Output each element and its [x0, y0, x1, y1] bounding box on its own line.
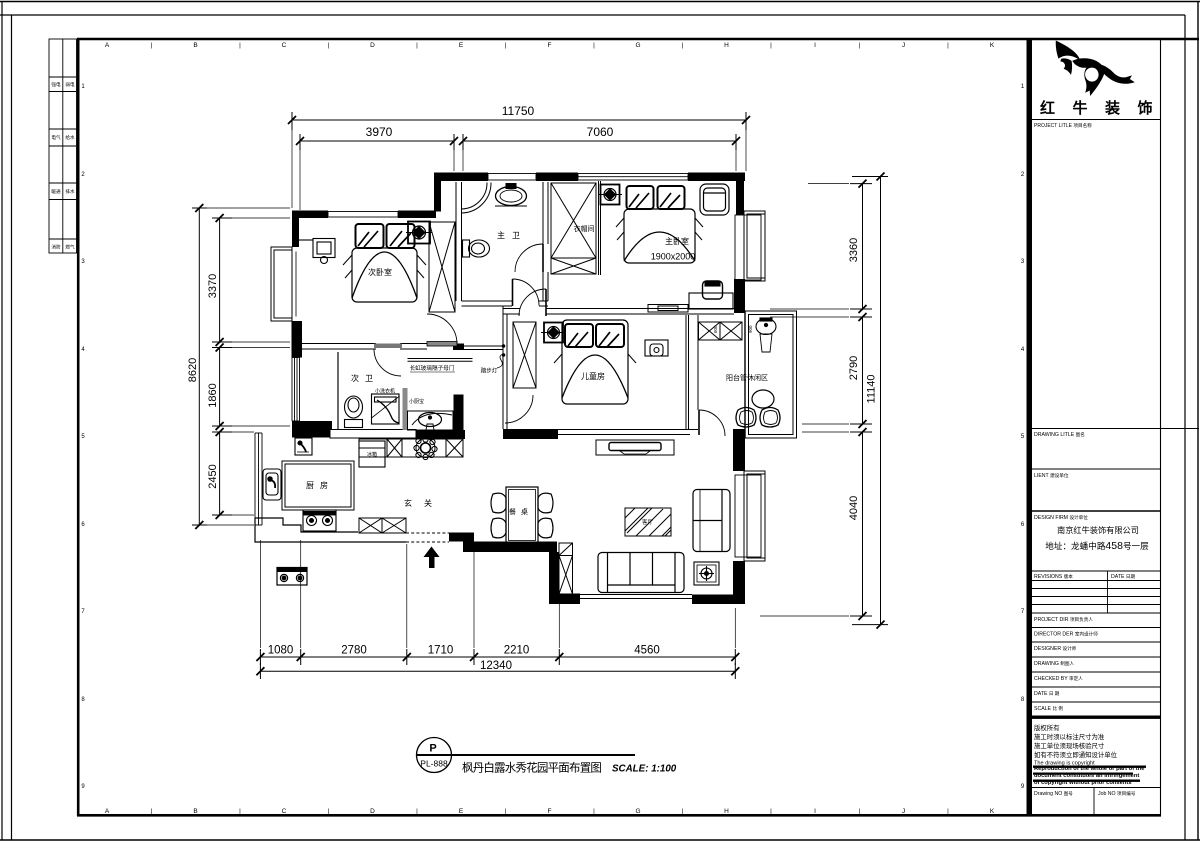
- svg-text:12340: 12340: [480, 660, 512, 672]
- svg-text:|: |: [947, 42, 949, 49]
- svg-text:地址：龙蟠中路458号一层: 地址：龙蟠中路458号一层: [1045, 540, 1149, 552]
- svg-text:|: |: [416, 808, 418, 815]
- svg-text:600: 600: [713, 325, 718, 333]
- svg-text:2210: 2210: [504, 645, 530, 657]
- svg-text:次卫: 次卫: [351, 373, 379, 383]
- svg-text:G: G: [635, 42, 640, 49]
- svg-text:小洗衣机: 小洗衣机: [375, 388, 395, 395]
- svg-text:电气: 电气: [51, 134, 61, 140]
- svg-text:K: K: [990, 42, 995, 49]
- svg-text:PROJECT LITLE 项目名称: PROJECT LITLE 项目名称: [1034, 122, 1092, 129]
- svg-text:E: E: [459, 42, 464, 49]
- svg-text:版权所有: 版权所有: [1034, 723, 1060, 732]
- svg-text:11140: 11140: [866, 375, 878, 404]
- svg-text:DESIGNER 设计师: DESIGNER 设计师: [1034, 645, 1077, 652]
- svg-text:给水: 给水: [65, 134, 75, 141]
- svg-text:玄关: 玄关: [404, 498, 444, 508]
- svg-text:SCALE 比 例: SCALE 比 例: [1034, 705, 1063, 712]
- svg-text:|: |: [239, 42, 241, 49]
- svg-text:|: |: [505, 42, 507, 49]
- svg-text:|: |: [593, 42, 595, 49]
- svg-text:I: I: [814, 808, 816, 815]
- svg-text:E: E: [459, 808, 464, 815]
- svg-text:A: A: [105, 808, 110, 815]
- svg-text:3370: 3370: [207, 274, 219, 298]
- svg-text:强电: 强电: [51, 81, 61, 88]
- svg-text:施工时须以标注尺寸为准: 施工时须以标注尺寸为准: [1034, 732, 1105, 741]
- svg-text:K: K: [990, 808, 995, 815]
- svg-text:J: J: [902, 42, 905, 49]
- svg-text:7060: 7060: [587, 125, 614, 139]
- svg-text:REVISIONS 版本: REVISIONS 版本: [1034, 573, 1073, 580]
- svg-text:1710: 1710: [428, 645, 454, 657]
- svg-text:主卧室: 主卧室: [665, 236, 689, 246]
- svg-text:PL-888: PL-888: [420, 759, 448, 769]
- svg-text:踏步灯: 踏步灯: [481, 367, 498, 375]
- svg-text:|: |: [770, 42, 772, 49]
- svg-text:Job NO 项目编号: Job NO 项目编号: [1098, 790, 1136, 797]
- svg-text:|: |: [151, 808, 153, 815]
- svg-text:DRAWING LITLE 图名: DRAWING LITLE 图名: [1034, 431, 1085, 438]
- svg-text:H: H: [724, 808, 729, 815]
- svg-text:红牛装饰: 红牛装饰: [1040, 99, 1170, 117]
- svg-text:儿童房: 儿童房: [581, 371, 605, 381]
- svg-text:|: |: [328, 808, 330, 815]
- svg-text:餐桌: 餐桌: [509, 507, 533, 516]
- svg-text:客厅: 客厅: [642, 518, 654, 526]
- svg-text:I: I: [814, 42, 816, 49]
- svg-text:|: |: [328, 42, 330, 49]
- svg-text:C: C: [282, 808, 287, 815]
- svg-text:|: |: [859, 42, 861, 49]
- svg-text:4040: 4040: [848, 496, 860, 520]
- svg-text:|: |: [770, 808, 772, 815]
- svg-text:|: |: [947, 808, 949, 815]
- svg-text:3360: 3360: [848, 238, 860, 262]
- svg-text:阳台管休闲区: 阳台管休闲区: [726, 373, 768, 382]
- svg-text:4560: 4560: [634, 645, 660, 657]
- svg-text:2790: 2790: [848, 356, 860, 380]
- svg-text:H: H: [724, 42, 729, 49]
- svg-text:1080: 1080: [268, 645, 294, 657]
- svg-text:弱电: 弱电: [65, 81, 75, 88]
- svg-text:施工单位须现场核验尺寸: 施工单位须现场核验尺寸: [1034, 741, 1105, 750]
- svg-text:2450: 2450: [207, 464, 219, 488]
- svg-text:CHECKED BY 审定人: CHECKED BY 审定人: [1034, 675, 1083, 682]
- svg-text:|: |: [505, 808, 507, 815]
- svg-text:|: |: [416, 42, 418, 49]
- svg-text:8620: 8620: [187, 358, 199, 382]
- svg-text:LIENT 建设单位: LIENT 建设单位: [1034, 472, 1069, 479]
- svg-text:|: |: [593, 808, 595, 815]
- svg-text:F: F: [548, 42, 552, 49]
- svg-text:P: P: [429, 743, 436, 755]
- svg-text:B: B: [193, 42, 197, 49]
- svg-text:如有不符须立即通知设计单位: 如有不符须立即通知设计单位: [1034, 750, 1118, 759]
- svg-text:J: J: [902, 808, 905, 815]
- svg-text:|: |: [151, 42, 153, 49]
- svg-text:冰箱: 冰箱: [367, 451, 377, 458]
- svg-text:消防: 消防: [51, 244, 61, 251]
- svg-text:PROJECT DIR 项目负责人: PROJECT DIR 项目负责人: [1034, 616, 1093, 623]
- svg-text:长虹玻璃隔子母门: 长虹玻璃隔子母门: [410, 364, 455, 372]
- svg-text:B: B: [193, 808, 197, 815]
- svg-text:3970: 3970: [366, 125, 393, 139]
- svg-text:11750: 11750: [502, 104, 535, 118]
- svg-text:C: C: [282, 42, 287, 49]
- svg-text:厨房: 厨房: [306, 480, 334, 490]
- svg-text:枫丹白露水秀花园平面布置图: 枫丹白露水秀花园平面布置图: [462, 761, 601, 775]
- svg-text:D: D: [370, 808, 375, 815]
- svg-text:SCALE: 1:100: SCALE: 1:100: [612, 764, 677, 775]
- svg-text:F: F: [548, 808, 552, 815]
- svg-text:1860: 1860: [207, 383, 219, 407]
- svg-text:|: |: [682, 42, 684, 49]
- svg-text:排水: 排水: [65, 188, 75, 195]
- svg-text:南京红牛装饰有限公司: 南京红牛装饰有限公司: [1057, 525, 1139, 535]
- svg-text:900: 900: [748, 325, 753, 333]
- svg-text:|: |: [859, 808, 861, 815]
- svg-text:D: D: [370, 42, 375, 49]
- svg-text:DIRECTOR DER 室内设计师: DIRECTOR DER 室内设计师: [1034, 631, 1098, 638]
- svg-text:主卫: 主卫: [497, 230, 527, 240]
- svg-text:DRAWING 制图人: DRAWING 制图人: [1034, 660, 1075, 667]
- svg-text:燃气: 燃气: [65, 244, 75, 251]
- svg-text:DESIGN FIRM 设计单位: DESIGN FIRM 设计单位: [1034, 514, 1088, 521]
- svg-text:A: A: [105, 42, 110, 49]
- svg-text:1900x2000: 1900x2000: [651, 252, 696, 262]
- svg-text:G: G: [635, 808, 640, 815]
- svg-text:2780: 2780: [341, 645, 367, 657]
- svg-text:次卧室: 次卧室: [368, 267, 392, 277]
- svg-text:小厨宝: 小厨宝: [409, 398, 424, 405]
- svg-text:暖通: 暖通: [51, 188, 61, 195]
- svg-text:|: |: [682, 808, 684, 815]
- svg-text:|: |: [239, 808, 241, 815]
